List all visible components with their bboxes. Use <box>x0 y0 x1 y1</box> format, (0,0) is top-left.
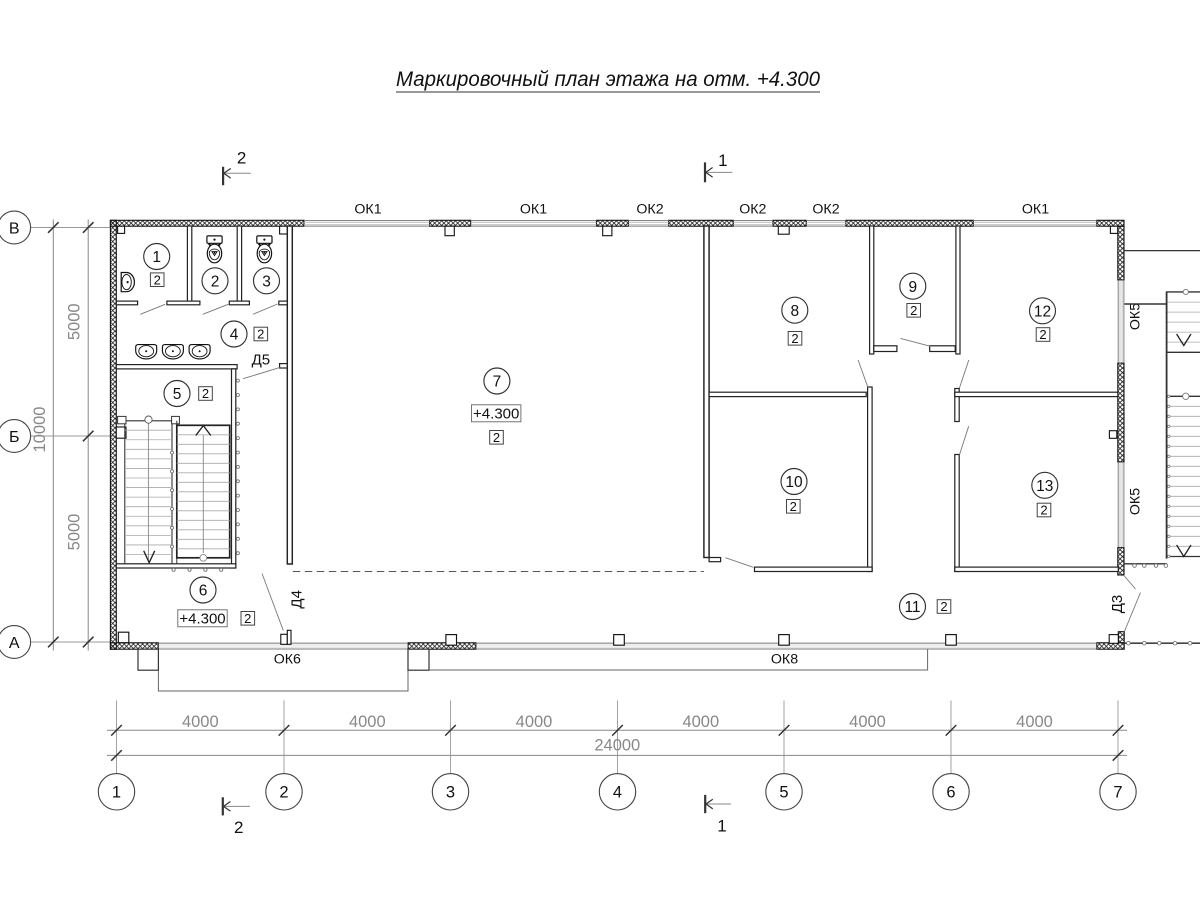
svg-text:Б: Б <box>9 429 20 446</box>
svg-text:+4.300: +4.300 <box>179 611 225 628</box>
svg-text:ОК8: ОК8 <box>771 651 798 667</box>
svg-text:Д4: Д4 <box>289 590 306 609</box>
svg-text:4: 4 <box>613 784 622 802</box>
svg-text:12: 12 <box>1034 303 1051 320</box>
svg-text:4000: 4000 <box>182 713 219 731</box>
svg-text:3: 3 <box>446 784 455 802</box>
svg-text:10000: 10000 <box>31 407 49 453</box>
svg-text:1: 1 <box>717 817 726 836</box>
svg-text:2: 2 <box>202 386 209 401</box>
svg-text:2: 2 <box>244 611 251 626</box>
svg-text:24000: 24000 <box>594 737 640 755</box>
svg-text:2: 2 <box>1040 503 1047 518</box>
svg-text:ОК2: ОК2 <box>739 202 766 218</box>
svg-text:4000: 4000 <box>349 713 386 731</box>
svg-text:ОК1: ОК1 <box>354 202 381 218</box>
svg-text:7: 7 <box>1113 784 1122 802</box>
svg-text:13: 13 <box>1036 478 1053 495</box>
svg-text:4000: 4000 <box>516 713 553 731</box>
svg-text:2: 2 <box>211 273 220 290</box>
svg-text:1: 1 <box>718 151 727 170</box>
svg-text:2: 2 <box>940 599 947 614</box>
svg-text:8: 8 <box>790 303 799 320</box>
svg-text:4: 4 <box>230 327 239 344</box>
svg-text:6: 6 <box>199 583 208 600</box>
svg-text:2: 2 <box>237 148 246 167</box>
svg-text:2: 2 <box>279 784 288 802</box>
svg-text:2: 2 <box>257 327 264 342</box>
svg-text:ОК1: ОК1 <box>520 202 547 218</box>
svg-text:4000: 4000 <box>849 713 886 731</box>
svg-text:5: 5 <box>173 386 182 403</box>
svg-text:+4.300: +4.300 <box>473 406 519 423</box>
svg-text:7: 7 <box>493 374 502 391</box>
svg-text:2: 2 <box>1039 327 1046 342</box>
svg-text:5000: 5000 <box>66 514 84 551</box>
svg-text:Д3: Д3 <box>1109 595 1126 614</box>
svg-text:3: 3 <box>262 273 271 290</box>
svg-text:ОК1: ОК1 <box>1022 202 1049 218</box>
svg-text:В: В <box>9 220 20 237</box>
svg-text:5000: 5000 <box>66 303 84 340</box>
svg-text:ОК2: ОК2 <box>812 202 839 218</box>
svg-text:2: 2 <box>790 499 797 514</box>
svg-text:2: 2 <box>154 272 161 287</box>
svg-text:ОК6: ОК6 <box>274 651 301 667</box>
svg-text:2: 2 <box>791 331 798 346</box>
svg-text:ОК5: ОК5 <box>1128 303 1144 330</box>
svg-text:5: 5 <box>779 784 788 802</box>
svg-text:ОК2: ОК2 <box>636 202 663 218</box>
svg-text:10: 10 <box>785 474 803 491</box>
svg-text:Д5: Д5 <box>252 352 271 369</box>
svg-text:1: 1 <box>112 784 121 802</box>
svg-text:А: А <box>9 635 20 652</box>
svg-text:6: 6 <box>946 784 955 802</box>
svg-text:11: 11 <box>904 599 920 616</box>
svg-text:2: 2 <box>493 430 500 445</box>
svg-text:4000: 4000 <box>682 713 719 731</box>
svg-text:2: 2 <box>234 818 243 837</box>
svg-text:2: 2 <box>910 303 917 318</box>
svg-text:9: 9 <box>908 279 917 296</box>
svg-text:1: 1 <box>152 249 161 266</box>
svg-text:Маркировочный план этажа на от: Маркировочный план этажа на отм. +4.300 <box>396 67 820 91</box>
svg-text:ОК5: ОК5 <box>1128 488 1144 515</box>
svg-text:4000: 4000 <box>1016 713 1053 731</box>
